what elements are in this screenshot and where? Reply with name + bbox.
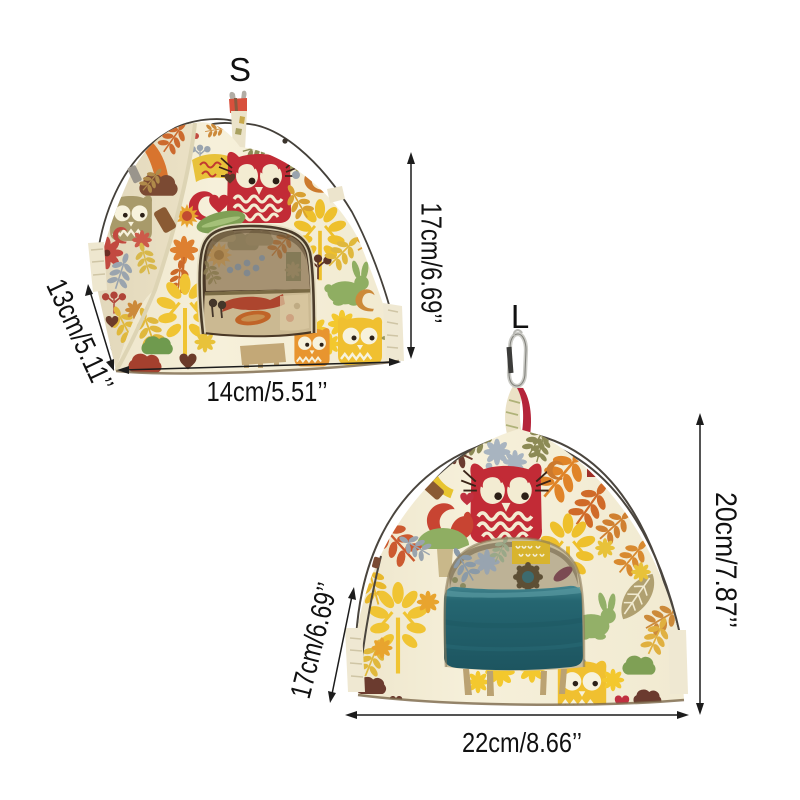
svg-text:22cm/8.66’’: 22cm/8.66’’ <box>462 727 582 758</box>
svg-text:17cm/6.69’’: 17cm/6.69’’ <box>414 203 446 324</box>
svg-text:14cm/5.51’’: 14cm/5.51’’ <box>207 376 328 407</box>
svg-text:L: L <box>511 298 529 335</box>
svg-text:20cm/7.87’’: 20cm/7.87’’ <box>709 492 742 628</box>
svg-text:S: S <box>229 51 251 88</box>
